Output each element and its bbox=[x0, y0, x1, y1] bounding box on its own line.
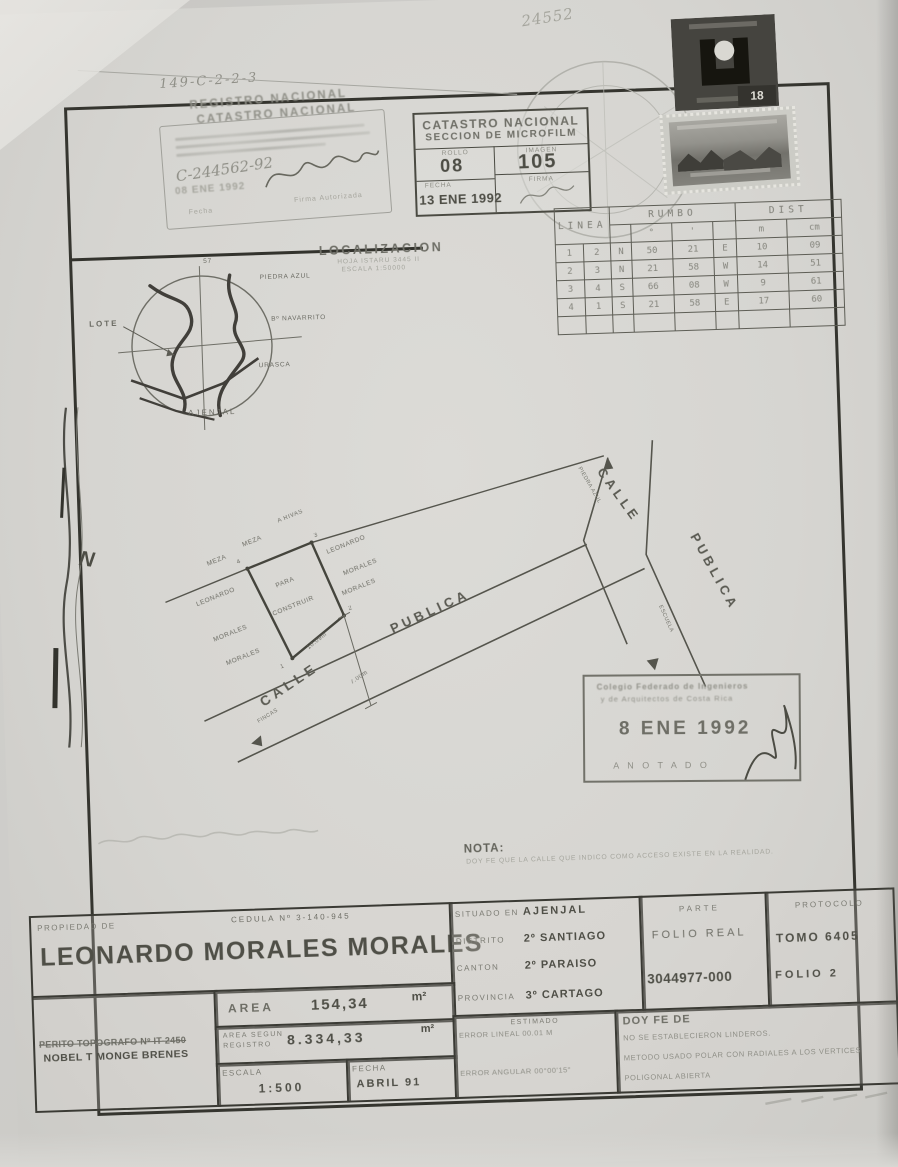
registro-fecha-label: Fecha bbox=[188, 207, 213, 216]
distrito-value: 2º SANTIAGO bbox=[524, 930, 607, 945]
postage-stamp bbox=[659, 106, 800, 195]
perito-label: PERITO TOPOGRAFO Nº IT-2450 bbox=[39, 1035, 186, 1050]
area-unit: m² bbox=[411, 989, 426, 1003]
scan-right-shadow bbox=[876, 0, 898, 1167]
area-registro-value: 8.334,33 bbox=[287, 1029, 366, 1048]
protocolo-label: PROTOCOLO bbox=[795, 898, 864, 909]
microfilm-fecha-value: 13 ENE 1992 bbox=[419, 190, 502, 208]
cell-doy-fe: DOY FE DE NO SE ESTABLECIERON LINDEROS. … bbox=[614, 1000, 898, 1093]
provincia-label: PROVINCIA bbox=[458, 992, 516, 1003]
folio-real-label: FOLIO REAL bbox=[652, 926, 747, 941]
folio-real-value: 3044977-000 bbox=[647, 969, 733, 987]
area-registro-unit: m² bbox=[421, 1023, 435, 1035]
cell-fecha: FECHA ABRIL 91 bbox=[346, 1055, 459, 1103]
tomo-value: TOMO 6405 bbox=[776, 929, 860, 946]
microfilm-fecha-label: FECHA bbox=[425, 182, 452, 190]
propiedad-label: PROPIEDAD DE bbox=[37, 921, 116, 933]
colegio-signature bbox=[725, 699, 806, 790]
canton-label: CANTON bbox=[457, 963, 500, 973]
area-registro-label2: REGISTRO bbox=[223, 1041, 272, 1050]
paper-sheet: 149-C-2-2-3 24552 REGISTRO NACIONAL CATA… bbox=[0, 0, 898, 1167]
escala-value: 1:500 bbox=[258, 1080, 304, 1096]
perito-name: NOBEL T MONGE BRENES bbox=[43, 1048, 188, 1065]
fold-crease bbox=[32, 406, 123, 748]
registro-stamp-box: C-244562-92 08 ENE 1992 Fecha Firma Auto… bbox=[159, 109, 392, 230]
provincia-value: 3º CARTAGO bbox=[526, 987, 604, 1002]
colegio-anotado: A N O T A D O bbox=[613, 760, 710, 771]
cell-perito: PERITO TOPOGRAFO Nº IT-2450 NOBEL T MONG… bbox=[31, 990, 221, 1113]
cedula-value: CEDULA Nº 3-140-945 bbox=[231, 911, 351, 924]
nota-title: NOTA: bbox=[464, 842, 505, 855]
estimado-label: ESTIMADO bbox=[510, 1018, 559, 1027]
linea-header: LINEA bbox=[554, 207, 610, 245]
scan-bottom-band bbox=[0, 1133, 898, 1167]
survey-table: LINEA RUMBO DIST ° ' m cm 12 N50 21E 100… bbox=[554, 199, 846, 335]
canton-value: 2º PARAISO bbox=[525, 957, 598, 971]
doyfe-line3: POLIGONAL ABIERTA bbox=[624, 1071, 711, 1083]
fecha-label: FECHA bbox=[352, 1063, 387, 1073]
imagen-value: 105 bbox=[518, 150, 558, 174]
doyfe-line1: NO SE ESTABLECIERON LINDEROS. bbox=[623, 1029, 771, 1043]
doyfe-title: DOY FE DE bbox=[622, 1013, 690, 1027]
map-tick-57: 57 bbox=[203, 258, 212, 265]
colegio-stamp: Colegio Federado de Ingenieros y de Arqu… bbox=[583, 673, 802, 783]
escala-label: ESCALA bbox=[222, 1067, 263, 1077]
error-lineal: ERROR LINEAL 00.01 M bbox=[459, 1028, 553, 1040]
scanned-cadastral-plan: 149-C-2-2-3 24552 REGISTRO NACIONAL CATA… bbox=[0, 0, 898, 1167]
distrito-label: DISTRITO bbox=[456, 935, 505, 946]
revenue-stamp-value: 18 bbox=[738, 85, 777, 106]
map-label-urasca: URASCA bbox=[259, 361, 291, 369]
situado-value: AJENJAL bbox=[523, 904, 587, 918]
map-label-ajenjal: AJENJAL bbox=[188, 407, 237, 418]
area-registro-label1: AREA SEGUN bbox=[223, 1031, 284, 1040]
cell-situado: SITUADO EN AJENJAL DISTRITO 2º SANTIAGO … bbox=[449, 896, 647, 1019]
microfilm-signature bbox=[512, 177, 583, 209]
owner-name: LEONARDO MORALES MORALES bbox=[40, 929, 484, 973]
folio-value: FOLIO 2 bbox=[775, 967, 839, 981]
area-value: 154,34 bbox=[311, 995, 369, 1014]
area-label: AREA bbox=[228, 1000, 274, 1016]
fecha-value: ABRIL 91 bbox=[356, 1076, 421, 1090]
handwritten-code: 149-C-2-2-3 bbox=[159, 70, 259, 92]
location-map: 57 LOTE PIEDRA AZUL Bº NAVARRITO URASCA … bbox=[87, 254, 333, 442]
cell-folio-real: PARTE FOLIO REAL 3044977-000 bbox=[638, 892, 772, 1013]
microfilm-box: CATASTRO NACIONAL SECCION DE MICROFILM R… bbox=[412, 107, 591, 217]
doyfe-line2: METODO USADO POLAR CON RADIALES A LOS VE… bbox=[624, 1046, 862, 1063]
colegio-line2: y de Arquitectos de Costa Rica bbox=[601, 694, 734, 704]
cell-errores: ESTIMADO ERROR LINEAL 00.01 M ERROR ANGU… bbox=[452, 1010, 621, 1099]
rollo-value: 08 bbox=[440, 155, 465, 177]
registro-signature bbox=[257, 140, 385, 197]
situado-label: SITUADO EN bbox=[455, 908, 519, 919]
cell-escala: ESCALA 1:500 bbox=[216, 1059, 351, 1107]
registro-nacional-stamp: REGISTRO NACIONAL CATASTRO NACIONAL C-24… bbox=[149, 85, 398, 233]
handwritten-number: 24552 bbox=[520, 4, 575, 30]
parte-label: PARTE bbox=[679, 903, 720, 913]
map-label-lote: LOTE bbox=[89, 319, 119, 329]
colegio-line1: Colegio Federado de Ingenieros bbox=[597, 682, 749, 692]
error-angular: ERROR ANGULAR 00°00'15" bbox=[460, 1065, 571, 1078]
